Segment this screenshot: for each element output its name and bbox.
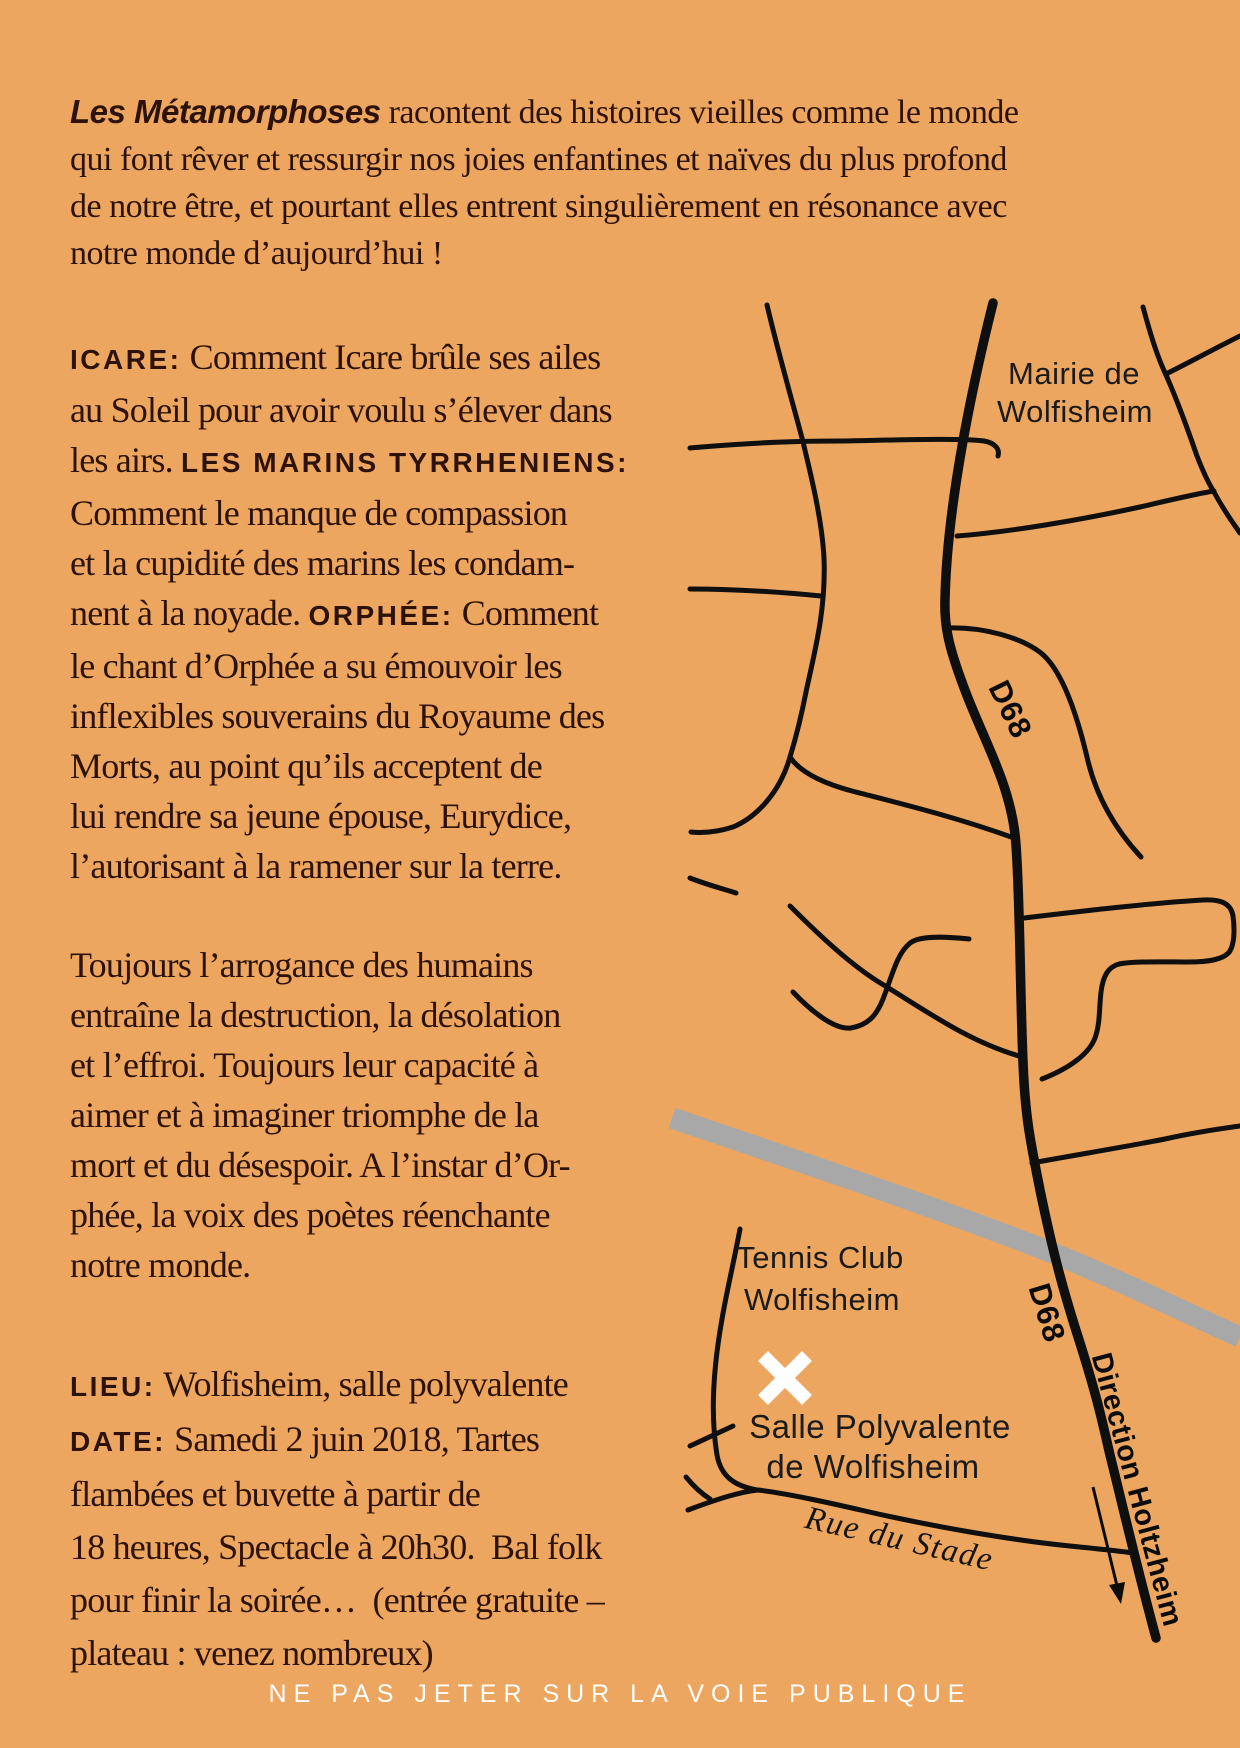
mairie-label-line2: Wolfisheim: [997, 394, 1153, 429]
text-line: le chant d’Orphée a su émouvoir les: [70, 641, 629, 691]
road-loop: [1024, 900, 1234, 1079]
direction-arrow-line: [1093, 1487, 1118, 1590]
intro-line-1-rest: racontent des histoires vieilles comme l…: [381, 94, 1019, 131]
text-line: l’autorisant à la ramener sur la terre.: [70, 841, 629, 891]
text-line: mort et du désespoir. A l’instar d’Or-: [70, 1140, 570, 1190]
flyer-page: Les Métamorphoses racontent des histoire…: [0, 0, 1240, 1748]
salle-label-line1: Salle Polyvalente: [749, 1408, 1011, 1445]
text-segment: nent à la noyade.: [70, 593, 309, 633]
text-line: pour finir la soirée… (entrée gratuite –: [70, 1574, 604, 1627]
text-line: lui rendre sa jeune épouse, Eurydice,: [70, 791, 629, 841]
intro-line: Les Métamorphoses racontent des histoire…: [70, 88, 1018, 136]
mairie-label-line1: Mairie de: [1008, 356, 1140, 391]
text-line: phée, la voix des poètes réenchante: [70, 1190, 570, 1240]
text-segment: Wolfisheim, salle polyvalente: [156, 1364, 568, 1404]
intro-line: qui font rêver et ressurgir nos joies en…: [70, 136, 1018, 183]
salle-label-line2: de Wolfisheim: [766, 1448, 979, 1485]
road-left-vertical: [691, 305, 824, 832]
footer-notice: NE PAS JETER SUR LA VOIE PUBLIQUE: [0, 1680, 1240, 1709]
text-segment: les airs.: [70, 440, 181, 480]
lieu-label: LIEU:: [70, 1371, 156, 1402]
road-top-right-branch: [1166, 336, 1240, 374]
text-line: flambées et buvette à partir de: [70, 1468, 604, 1521]
text-line: plateau : venez nombreux): [70, 1627, 604, 1680]
text-segment: Samedi 2 juin 2018, Tartes: [166, 1419, 539, 1459]
date-line: DATE: Samedi 2 juin 2018, Tartes: [70, 1413, 604, 1468]
intro-paragraph: Les Métamorphoses racontent des histoire…: [70, 88, 1018, 277]
road-middle-stub: [690, 878, 736, 893]
tennis-label-line2: Wolfisheim: [744, 1282, 900, 1317]
text-line: et la cupidité des marins les condam-: [70, 538, 629, 588]
road-short-segment: [690, 589, 821, 596]
text-line: Toujours l’arrogance des humains: [70, 940, 570, 990]
text-line: ICARE: Comment Icare brûle ses ailes: [70, 332, 629, 385]
x-marker: [763, 1356, 807, 1400]
text-line: aimer et à imaginer triomphe de la: [70, 1090, 570, 1140]
lieu-line: LIEU: Wolfisheim, salle polyvalente: [70, 1358, 604, 1413]
lieu-date-block: LIEU: Wolfisheim, salle polyvalente DATE…: [70, 1358, 604, 1680]
road-east-curve: [948, 628, 1141, 857]
tennis-label-line1: Tennis Club: [736, 1240, 903, 1275]
text-line: entraîne la destruction, la désolation: [70, 990, 570, 1040]
stories-paragraph: ICARE: Comment Icare brûle ses ailes au …: [70, 332, 629, 891]
text-line: les airs. LES MARINS TYRRHENIENS:: [70, 435, 629, 488]
rue-du-stade-label: Rue du Stade: [801, 1500, 997, 1579]
wolfisheim-map: Mairie de Wolfisheim D68 D68 Tennis Club…: [600, 253, 1240, 1675]
d68-label-upper: D68: [982, 675, 1040, 744]
text-line: Morts, au point qu’ils acceptent de: [70, 741, 629, 791]
intro-line: de notre être, et pourtant elles entrent…: [70, 183, 1018, 230]
show-title: Les Métamorphoses: [70, 93, 381, 130]
date-label: DATE:: [70, 1426, 166, 1457]
toujours-paragraph: Toujours l’arrogance des humains entraîn…: [70, 940, 570, 1290]
road-tennis-stub-1: [690, 1426, 733, 1446]
road-right-lower: [1032, 1126, 1240, 1163]
marins-label: LES MARINS TYRRHENIENS:: [181, 447, 629, 478]
text-line: Comment le manque de compassion: [70, 488, 629, 538]
text-segment: Comment: [454, 593, 599, 633]
direction-holtzheim-label: Direction Holtzheim: [1085, 1349, 1189, 1629]
text-line: 18 heures, Spectacle à 20h30. Bal folk: [70, 1521, 604, 1574]
road-middle-diagonal: [790, 906, 1019, 1056]
text-line: nent à la noyade. ORPHÉE: Comment: [70, 588, 629, 641]
text-line: au Soleil pour avoir voulu s’élever dans: [70, 385, 629, 435]
text-line: inflexibles souverains du Royaume des: [70, 691, 629, 741]
road-junction-to-d68: [790, 757, 1014, 838]
road-tennis-stub-2: [686, 1477, 710, 1499]
text-line: notre monde.: [70, 1240, 570, 1290]
road-mid-connector: [957, 491, 1214, 536]
orphee-label: ORPHÉE:: [309, 600, 454, 631]
road-top-horizontal: [690, 439, 998, 456]
text-line: et l’effroi. Toujours leur capacité à: [70, 1040, 570, 1090]
icare-label: ICARE:: [70, 344, 181, 375]
text-segment: Comment Icare brûle ses ailes: [181, 337, 600, 377]
direction-arrow-head: [1109, 1582, 1125, 1604]
